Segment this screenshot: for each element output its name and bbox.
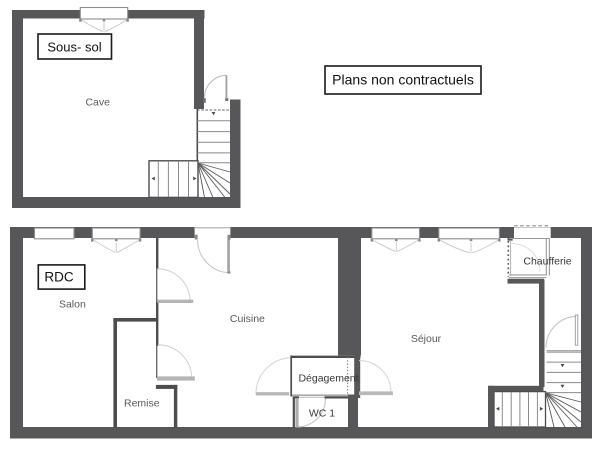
svg-text:Sous- sol: Sous- sol xyxy=(47,40,101,55)
svg-text:Chaufferie: Chaufferie xyxy=(523,256,571,268)
svg-text:Cave: Cave xyxy=(85,97,110,109)
svg-text:Salon: Salon xyxy=(59,299,86,311)
svg-text:Séjour: Séjour xyxy=(411,333,442,345)
svg-text:Remise: Remise xyxy=(124,398,160,410)
svg-text:RDC: RDC xyxy=(44,269,73,284)
svg-text:Dégagement: Dégagement xyxy=(298,372,358,384)
svg-text:WC 1: WC 1 xyxy=(309,408,335,420)
svg-text:Plans non contractuels: Plans non contractuels xyxy=(332,72,474,88)
svg-text:Cuisine: Cuisine xyxy=(230,313,265,325)
